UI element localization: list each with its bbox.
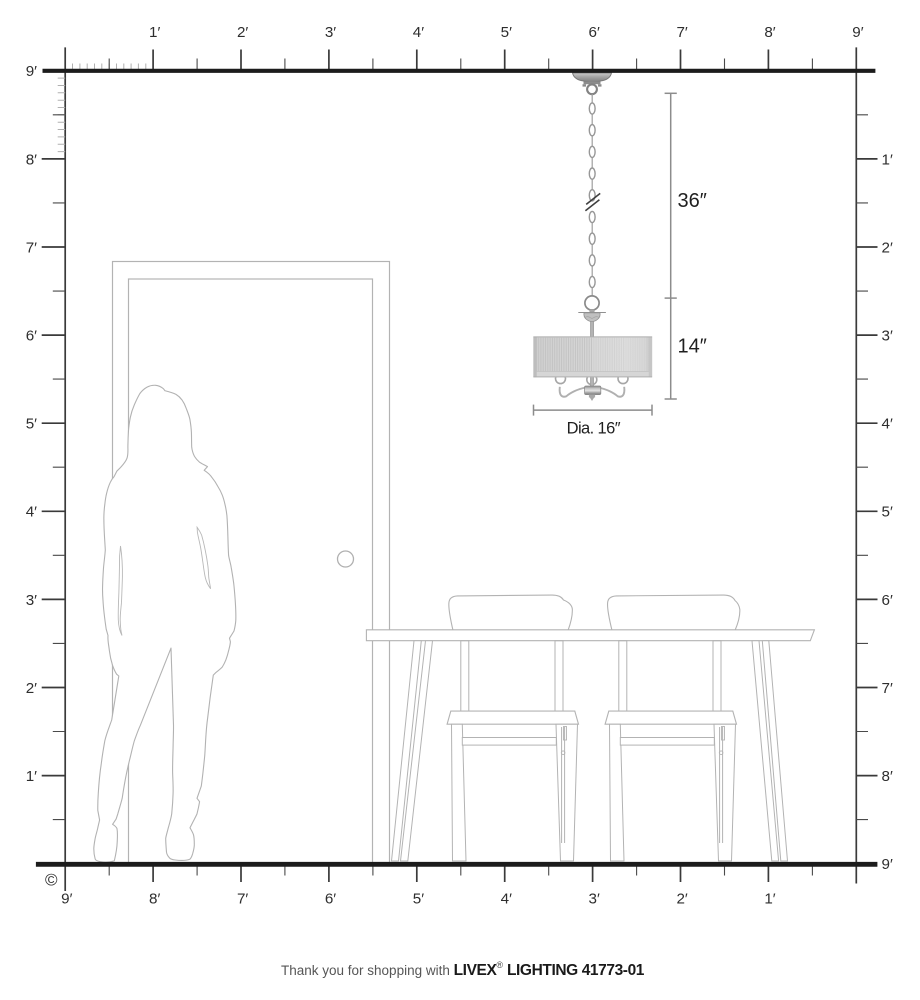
svg-text:9′: 9′: [852, 24, 863, 41]
svg-text:2′: 2′: [26, 680, 37, 697]
svg-text:2′: 2′: [882, 239, 893, 256]
svg-text:7′: 7′: [676, 24, 687, 41]
svg-text:4′: 4′: [882, 416, 893, 433]
svg-text:6′: 6′: [882, 592, 893, 609]
svg-text:1′: 1′: [149, 24, 160, 41]
svg-text:9′: 9′: [26, 63, 37, 80]
svg-text:14″: 14″: [678, 335, 707, 357]
svg-text:4′: 4′: [413, 24, 424, 41]
svg-text:5′: 5′: [882, 504, 893, 521]
svg-text:4′: 4′: [26, 504, 37, 521]
svg-text:2′: 2′: [237, 24, 248, 41]
svg-text:1′: 1′: [764, 890, 775, 907]
svg-text:7′: 7′: [237, 890, 248, 907]
svg-text:36″: 36″: [678, 190, 707, 212]
svg-text:1′: 1′: [26, 768, 37, 785]
svg-text:9′: 9′: [882, 856, 893, 873]
svg-text:1′: 1′: [882, 151, 893, 168]
svg-text:8′: 8′: [764, 24, 775, 41]
svg-text:©: ©: [45, 871, 58, 890]
svg-text:3′: 3′: [589, 890, 600, 907]
svg-text:8′: 8′: [149, 890, 160, 907]
svg-text:6′: 6′: [589, 24, 600, 41]
svg-text:8′: 8′: [26, 151, 37, 168]
svg-text:4′: 4′: [501, 890, 512, 907]
svg-text:7′: 7′: [882, 680, 893, 697]
svg-text:9′: 9′: [61, 890, 72, 907]
svg-text:3′: 3′: [882, 328, 893, 345]
svg-text:6′: 6′: [26, 328, 37, 345]
svg-text:3′: 3′: [26, 592, 37, 609]
svg-text:2′: 2′: [676, 890, 687, 907]
svg-text:5′: 5′: [413, 890, 424, 907]
svg-text:6′: 6′: [325, 890, 336, 907]
svg-text:5′: 5′: [26, 416, 37, 433]
svg-text:3′: 3′: [325, 24, 336, 41]
svg-text:7′: 7′: [26, 239, 37, 256]
svg-text:8′: 8′: [882, 768, 893, 785]
svg-text:Dia. 16″: Dia. 16″: [567, 420, 621, 438]
svg-text:5′: 5′: [501, 24, 512, 41]
svg-text:Thank you for shopping with LI: Thank you for shopping with LIVEX® LIGHT…: [281, 960, 645, 979]
